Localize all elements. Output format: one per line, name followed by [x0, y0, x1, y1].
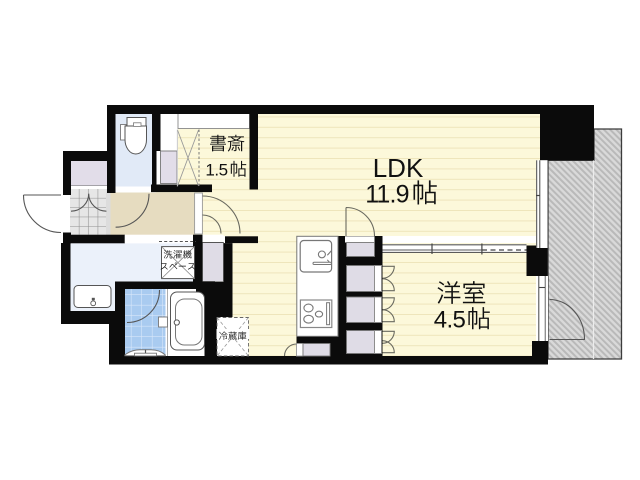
svg-text:4.5: 4.5	[434, 307, 466, 334]
svg-text:1.5: 1.5	[205, 161, 227, 180]
svg-text:LDK: LDK	[373, 153, 424, 183]
svg-text:11.9: 11.9	[365, 181, 409, 209]
